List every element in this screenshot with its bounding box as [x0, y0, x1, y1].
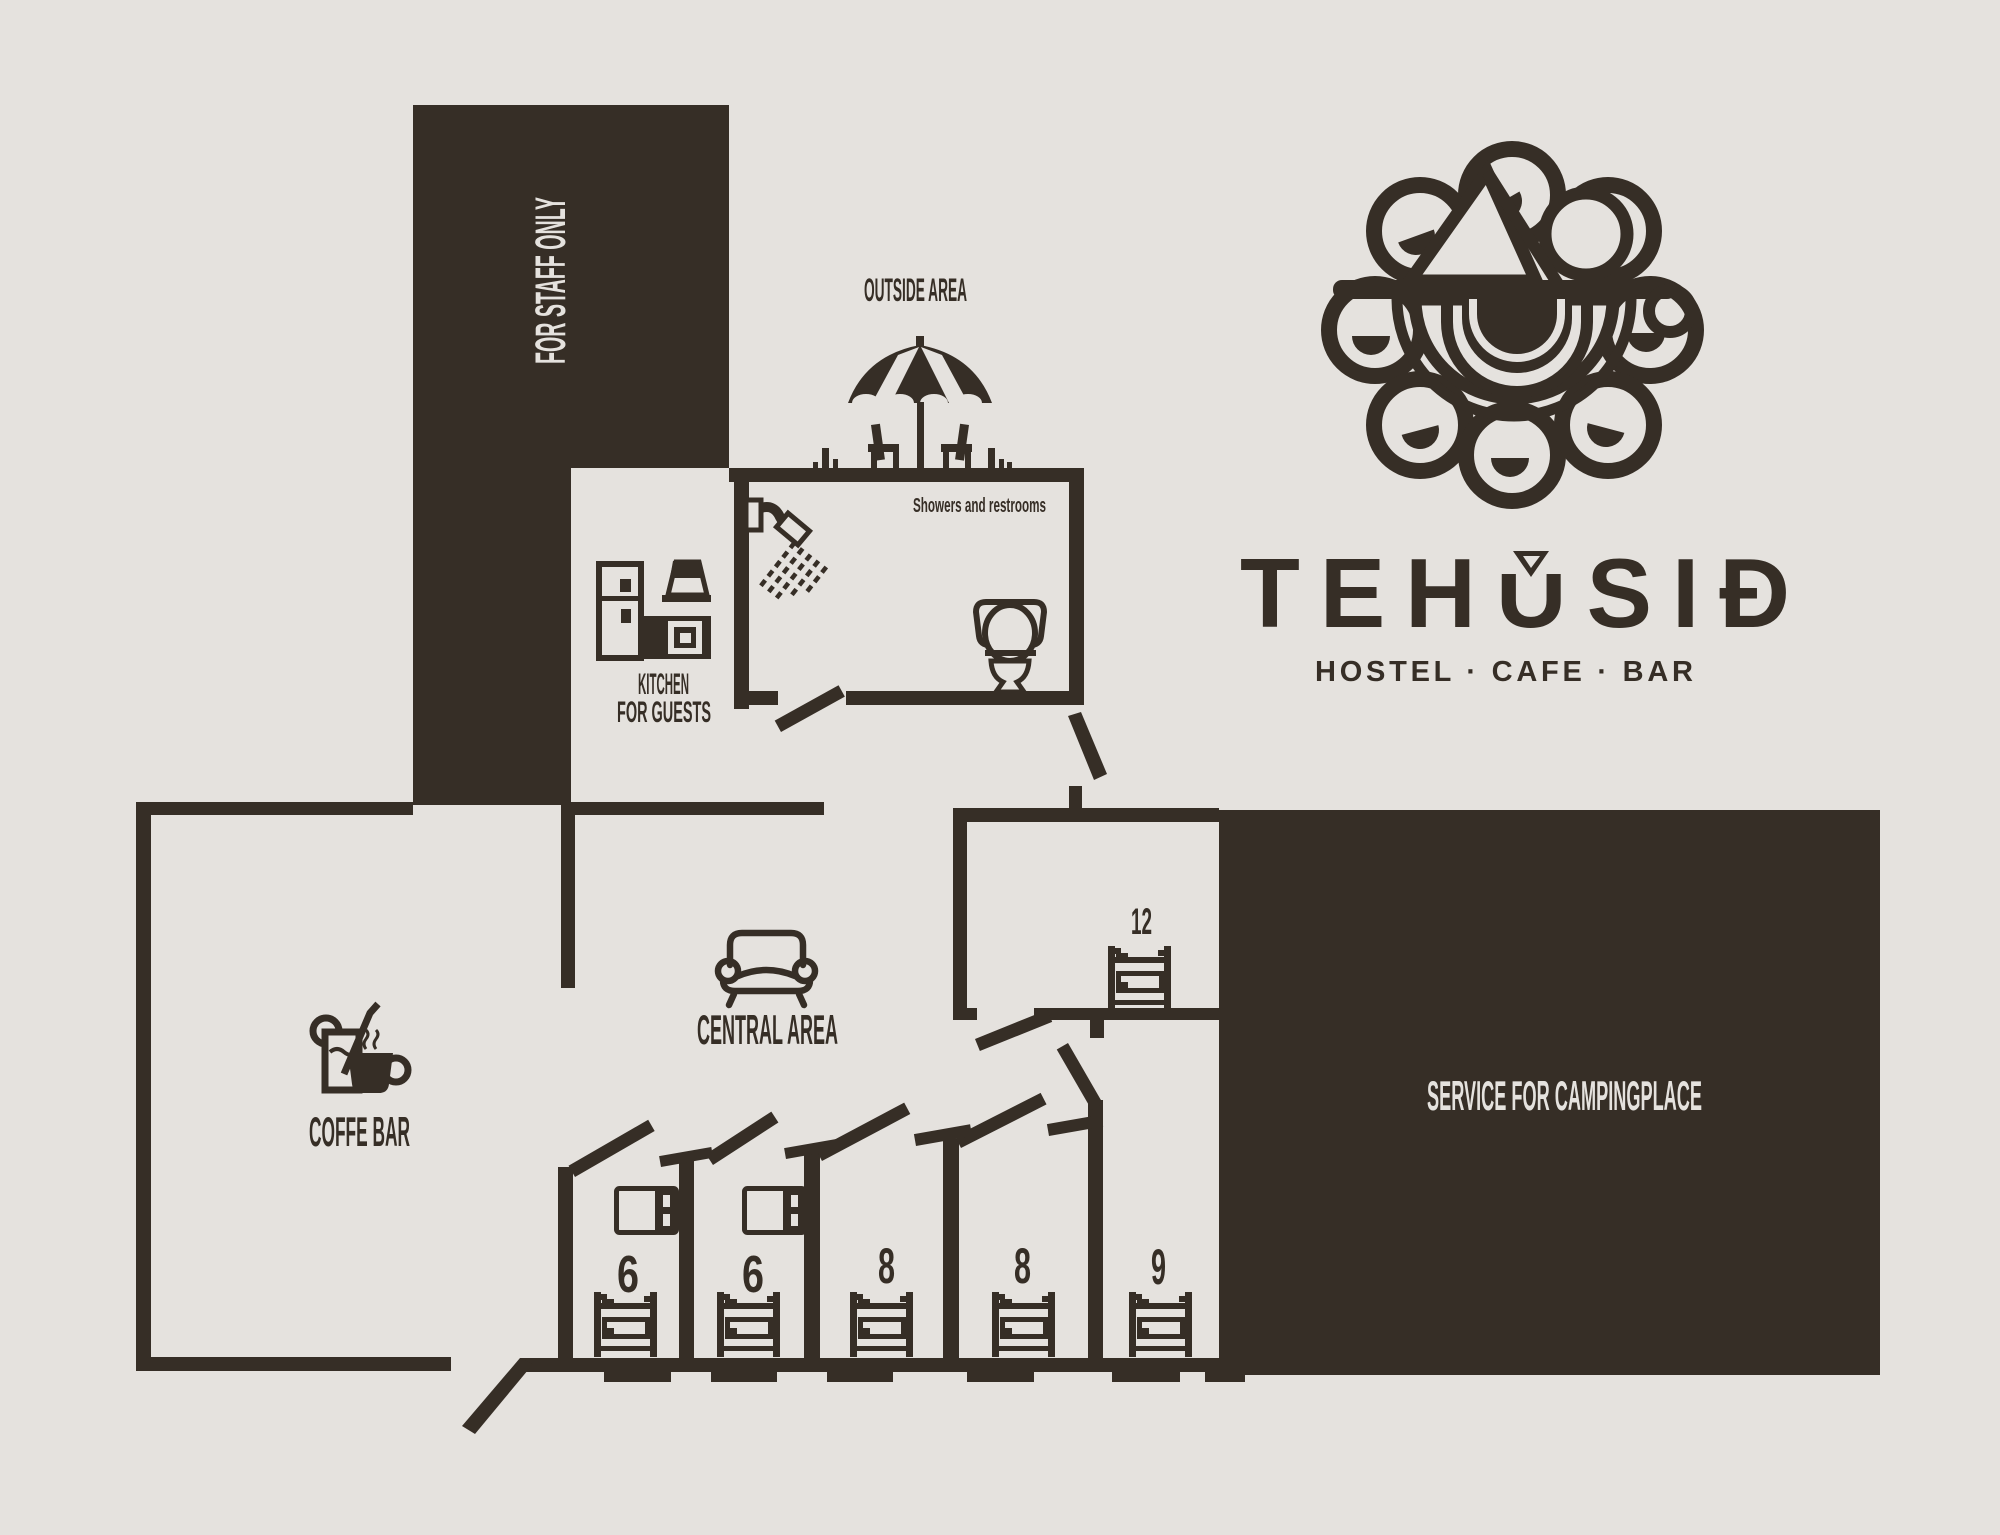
svg-text:9: 9	[1151, 1239, 1166, 1295]
svg-text:SERVICE FOR CAMPINGPLACE: SERVICE FOR CAMPINGPLACE	[1427, 1072, 1702, 1119]
svg-text:CENTRAL AREA: CENTRAL AREA	[697, 1006, 838, 1053]
svg-text:12: 12	[1131, 901, 1152, 942]
svg-text:Showers and restrooms: Showers and restrooms	[913, 495, 1046, 517]
svg-text:6: 6	[617, 1246, 639, 1304]
svg-text:8: 8	[1014, 1238, 1031, 1294]
svg-text:8: 8	[878, 1238, 895, 1294]
svg-text:6: 6	[742, 1246, 764, 1304]
svg-text:OUTSIDE AREA: OUTSIDE AREA	[864, 272, 967, 308]
svg-text:FOR STAFF ONLY: FOR STAFF ONLY	[527, 197, 575, 364]
svg-text:COFFE BAR: COFFE BAR	[309, 1108, 410, 1155]
svg-text:HOSTEL · CAFE · BAR: HOSTEL · CAFE · BAR	[1315, 656, 1693, 688]
svg-text:FOR GUESTS: FOR GUESTS	[617, 696, 711, 729]
